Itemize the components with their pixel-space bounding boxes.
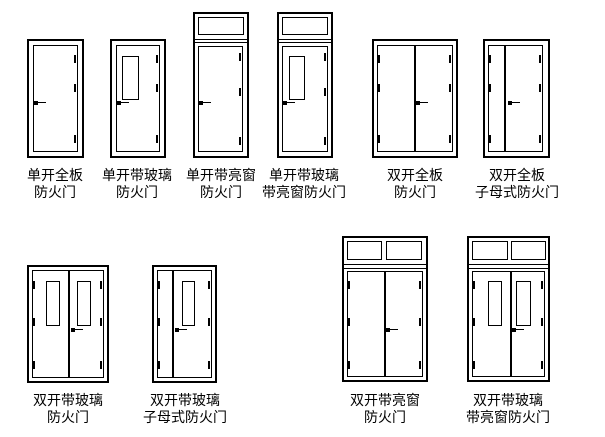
fire-door-type-diagram: 单开全板防火门单开带玻璃防火门单开带亮窗防火门单开带玻璃带亮窗防火门双开全板防火… bbox=[0, 0, 605, 437]
door-handle-shaft bbox=[203, 102, 211, 103]
transom-window bbox=[347, 241, 382, 260]
door-leaf bbox=[33, 45, 78, 152]
door-leaf bbox=[347, 271, 385, 377]
door-label-line: 带亮窗防火门 bbox=[438, 410, 578, 427]
door-single-glass-transom bbox=[277, 12, 333, 158]
transom-divider-line bbox=[195, 39, 247, 40]
glass-panel bbox=[516, 281, 531, 326]
door-handle-shaft bbox=[420, 102, 428, 103]
transom-divider-line bbox=[279, 39, 331, 40]
hinge-mark bbox=[378, 84, 380, 92]
transom-divider-line bbox=[469, 264, 548, 265]
door-handle-shaft bbox=[512, 102, 520, 103]
hinge-mark bbox=[156, 135, 158, 143]
hinge-mark bbox=[156, 84, 158, 92]
hinge-mark bbox=[324, 137, 326, 145]
door-handle-shaft bbox=[75, 329, 83, 330]
door-handle-shaft bbox=[38, 102, 46, 103]
transom-window bbox=[472, 241, 508, 260]
door-double-glass-transom bbox=[467, 236, 550, 382]
hinge-mark bbox=[100, 318, 102, 326]
hinge-mark bbox=[489, 135, 491, 143]
hinge-mark bbox=[208, 281, 210, 289]
door-handle-shaft bbox=[179, 329, 187, 330]
hinge-mark bbox=[473, 318, 475, 326]
door-handle-shaft bbox=[516, 329, 524, 330]
hinge-mark bbox=[239, 88, 241, 96]
hinge-mark bbox=[33, 318, 35, 326]
hinge-mark bbox=[208, 361, 210, 369]
hinge-mark bbox=[541, 361, 543, 369]
transom-divider-line bbox=[469, 268, 548, 269]
door-label-double-transom: 双开带亮窗防火门 bbox=[315, 393, 455, 427]
hinge-mark bbox=[473, 281, 475, 289]
hinge-mark bbox=[378, 55, 380, 63]
glass-panel bbox=[182, 281, 195, 326]
door-double-solid-mother-child bbox=[483, 39, 550, 158]
door-label-line: 双开带玻璃 bbox=[438, 393, 578, 410]
hinge-mark bbox=[158, 318, 160, 326]
hinge-mark bbox=[541, 318, 543, 326]
hinge-mark bbox=[324, 88, 326, 96]
transom-divider-line bbox=[195, 42, 247, 43]
door-leaf bbox=[415, 45, 453, 152]
hinge-mark bbox=[348, 281, 350, 289]
hinge-mark bbox=[539, 135, 541, 143]
hinge-mark bbox=[74, 84, 76, 92]
hinge-mark bbox=[74, 135, 76, 143]
hinge-mark bbox=[100, 361, 102, 369]
door-double-glass bbox=[27, 265, 109, 383]
hinge-mark bbox=[449, 84, 451, 92]
hinge-mark bbox=[539, 84, 541, 92]
door-label-line: 防火门 bbox=[315, 410, 455, 427]
hinge-mark bbox=[539, 55, 541, 63]
door-label-double-glass-transom: 双开带玻璃带亮窗防火门 bbox=[438, 393, 578, 427]
door-handle-shaft bbox=[390, 329, 398, 330]
door-label-double-solid-mother-child: 双开全板子母式防火门 bbox=[447, 168, 587, 202]
door-label-line: 子母式防火门 bbox=[115, 410, 255, 427]
hinge-mark bbox=[239, 53, 241, 61]
hinge-mark bbox=[449, 135, 451, 143]
transom-divider-line bbox=[344, 268, 426, 269]
door-label-line: 子母式防火门 bbox=[447, 185, 587, 202]
door-label-line: 双开带亮窗 bbox=[315, 393, 455, 410]
glass-panel bbox=[77, 281, 91, 326]
hinge-mark bbox=[489, 55, 491, 63]
hinge-mark bbox=[449, 55, 451, 63]
transom-divider-line bbox=[344, 264, 426, 265]
door-handle-shaft bbox=[287, 102, 295, 103]
hinge-mark bbox=[419, 281, 421, 289]
door-label-double-glass-mother-child: 双开带玻璃子母式防火门 bbox=[115, 393, 255, 427]
hinge-mark bbox=[33, 361, 35, 369]
hinge-mark bbox=[348, 361, 350, 369]
hinge-mark bbox=[239, 137, 241, 145]
transom-window bbox=[386, 241, 422, 260]
door-single-transom bbox=[193, 12, 249, 158]
door-label-line: 双开全板 bbox=[447, 168, 587, 185]
door-leaf bbox=[377, 45, 415, 152]
hinge-mark bbox=[324, 53, 326, 61]
door-single-solid bbox=[27, 39, 84, 158]
door-double-glass-mother-child bbox=[152, 265, 217, 383]
hinge-mark bbox=[419, 361, 421, 369]
door-single-glass bbox=[110, 39, 166, 158]
door-leaf bbox=[198, 46, 243, 152]
door-leaf bbox=[385, 271, 423, 377]
hinge-mark bbox=[156, 55, 158, 63]
hinge-mark bbox=[419, 318, 421, 326]
glass-panel bbox=[122, 56, 139, 100]
hinge-mark bbox=[158, 361, 160, 369]
transom-window bbox=[511, 241, 546, 260]
hinge-mark bbox=[74, 55, 76, 63]
hinge-mark bbox=[100, 281, 102, 289]
hinge-mark bbox=[378, 135, 380, 143]
hinge-mark bbox=[33, 281, 35, 289]
transom-window bbox=[198, 17, 244, 35]
hinge-mark bbox=[489, 84, 491, 92]
door-double-transom bbox=[342, 236, 428, 382]
door-label-line: 双开带玻璃 bbox=[115, 393, 255, 410]
hinge-mark bbox=[541, 281, 543, 289]
transom-window bbox=[282, 17, 328, 35]
glass-panel bbox=[289, 56, 305, 100]
glass-panel bbox=[488, 281, 502, 326]
door-leaf bbox=[505, 45, 543, 152]
hinge-mark bbox=[208, 318, 210, 326]
door-handle-shaft bbox=[121, 102, 129, 103]
transom-divider-line bbox=[279, 42, 331, 43]
hinge-mark bbox=[473, 361, 475, 369]
door-double-solid bbox=[372, 39, 458, 158]
hinge-mark bbox=[348, 318, 350, 326]
glass-panel bbox=[46, 281, 60, 326]
hinge-mark bbox=[158, 281, 160, 289]
